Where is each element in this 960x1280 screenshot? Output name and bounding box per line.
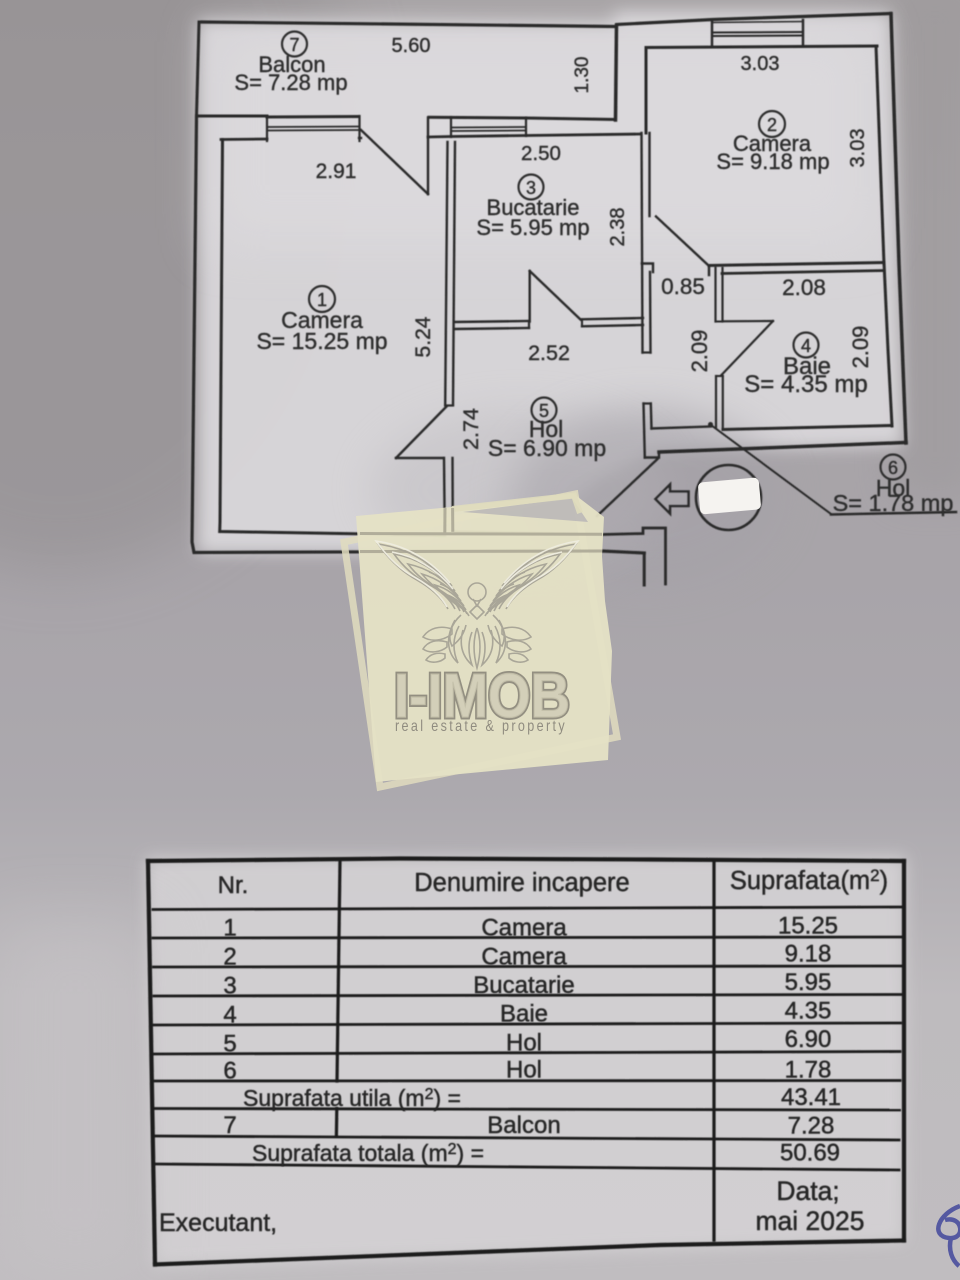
svg-text:6.90: 6.90 — [785, 1026, 832, 1053]
svg-text:S= 7.28 mp: S= 7.28 mp — [234, 70, 347, 95]
svg-text:3: 3 — [223, 973, 236, 1000]
svg-text:Data;: Data; — [776, 1176, 839, 1206]
svg-text:mai 2025: mai 2025 — [755, 1206, 864, 1236]
svg-text:1: 1 — [223, 915, 236, 942]
svg-text:2.50: 2.50 — [521, 142, 561, 165]
svg-text:0.85: 0.85 — [661, 274, 705, 299]
svg-text:2.52: 2.52 — [528, 341, 570, 365]
svg-text:1.78: 1.78 — [785, 1057, 832, 1084]
svg-text:2.08: 2.08 — [782, 275, 826, 300]
svg-text:43.41: 43.41 — [781, 1084, 841, 1111]
svg-text:Hol: Hol — [506, 1030, 542, 1057]
svg-text:2.38: 2.38 — [607, 208, 629, 247]
svg-text:Suprafata(m2): Suprafata(m2) — [730, 866, 888, 895]
svg-text:5.24: 5.24 — [412, 316, 435, 357]
svg-text:5.95: 5.95 — [785, 969, 832, 996]
svg-text:3.03: 3.03 — [741, 53, 780, 75]
svg-text:Nr.: Nr. — [218, 872, 249, 899]
svg-text:Baie: Baie — [500, 1001, 548, 1028]
svg-text:5: 5 — [223, 1031, 236, 1058]
svg-text:real estate & property: real estate & property — [395, 718, 567, 735]
svg-text:2: 2 — [223, 944, 236, 971]
svg-text:2.09: 2.09 — [687, 330, 712, 373]
svg-text:Camera: Camera — [481, 944, 567, 971]
svg-text:S= 6.90 mp: S= 6.90 mp — [488, 435, 606, 461]
svg-text:Camera: Camera — [481, 915, 567, 942]
svg-text:Hol: Hol — [506, 1057, 542, 1084]
svg-text:S= 1.78 mp: S= 1.78 mp — [833, 490, 954, 516]
svg-text:4.35: 4.35 — [785, 998, 832, 1025]
svg-text:15.25: 15.25 — [778, 913, 838, 940]
svg-text:7: 7 — [223, 1112, 236, 1139]
svg-text:2.09: 2.09 — [848, 326, 873, 369]
svg-text:S= 4.35 mp: S= 4.35 mp — [744, 371, 867, 398]
svg-text:3.03: 3.03 — [847, 129, 869, 168]
svg-text:7.28: 7.28 — [788, 1113, 835, 1140]
svg-text:9.18: 9.18 — [785, 941, 832, 968]
svg-text:1.30: 1.30 — [572, 57, 593, 94]
svg-text:Denumire incapere: Denumire incapere — [414, 869, 629, 897]
svg-text:Bucatarie: Bucatarie — [473, 972, 574, 999]
svg-text:S= 15.25 mp: S= 15.25 mp — [256, 328, 387, 354]
svg-text:50.69: 50.69 — [780, 1140, 840, 1167]
svg-text:4: 4 — [223, 1002, 236, 1029]
svg-text:S= 5.95 mp: S= 5.95 mp — [476, 215, 589, 240]
svg-text:Balcon: Balcon — [487, 1112, 560, 1139]
svg-text:Executant,: Executant, — [159, 1209, 277, 1237]
svg-text:6: 6 — [223, 1058, 236, 1085]
svg-text:2.74: 2.74 — [459, 408, 483, 450]
svg-text:5.60: 5.60 — [392, 35, 431, 57]
svg-text:2.91: 2.91 — [316, 160, 357, 183]
svg-text:S= 9.18 mp: S= 9.18 mp — [716, 149, 829, 174]
